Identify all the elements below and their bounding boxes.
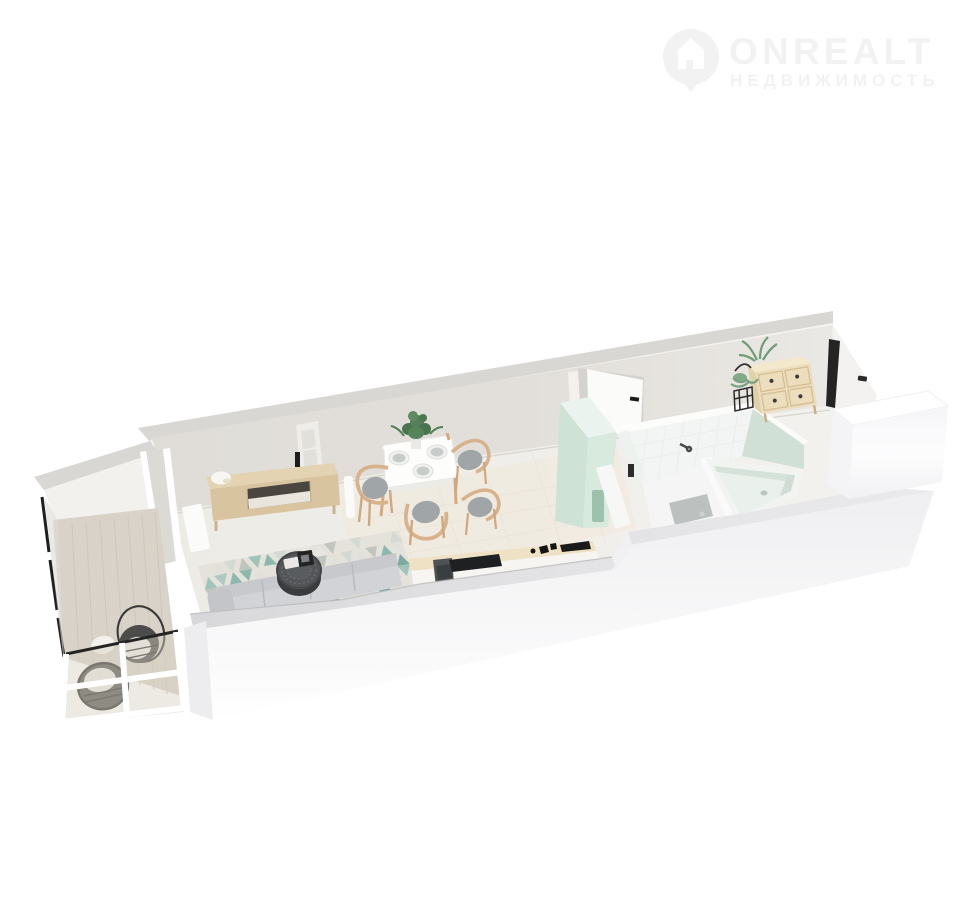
svg-text:НЕДВИЖИМОСТЬ: НЕДВИЖИМОСТЬ [730,71,940,90]
svg-text:ONREALT: ONREALT [729,31,934,72]
